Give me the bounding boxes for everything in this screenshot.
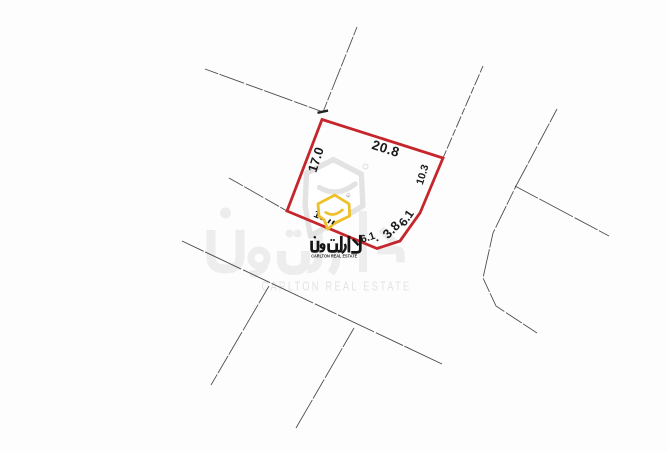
svg-text:CARLTON REAL ESTATE: CARLTON REAL ESTATE (262, 279, 412, 294)
svg-text:CARLTON REAL ESTATE: CARLTON REAL ESTATE (311, 254, 357, 259)
svg-text:R: R (347, 194, 349, 198)
